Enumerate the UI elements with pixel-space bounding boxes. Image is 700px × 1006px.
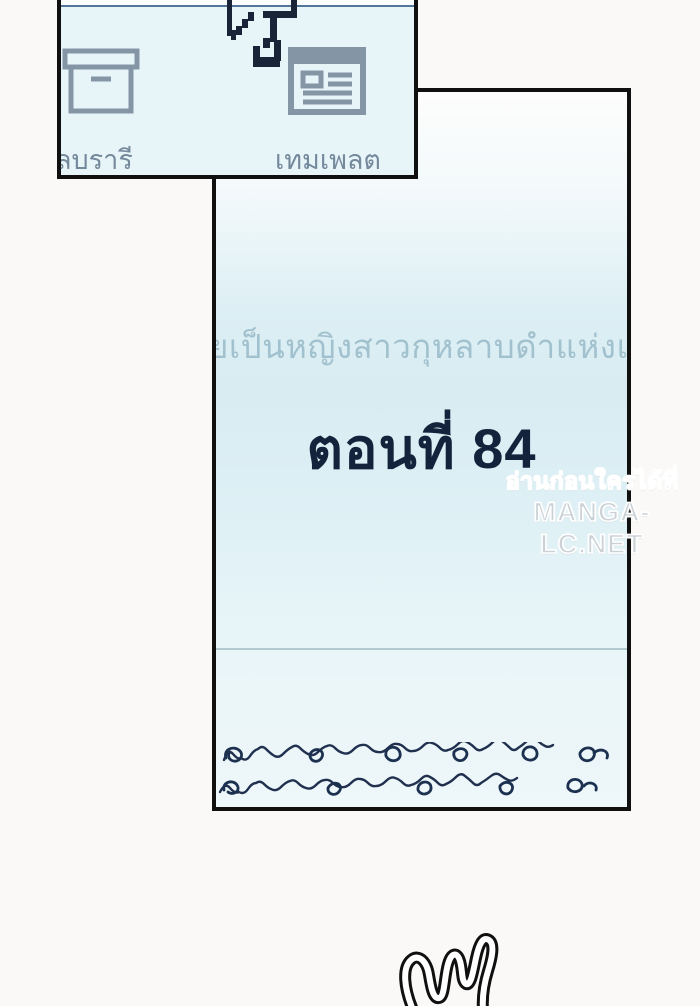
comic-panel: ยเป็นหญิงสาวกุหลาบดำแห่งแวร์ซาย ตอนที่ 8… xyxy=(212,88,631,811)
panel-divider-line xyxy=(216,648,627,650)
watermark-tagline: อ่านก่อนใครได้ที่ xyxy=(482,466,700,496)
series-title: ยเป็นหญิงสาวกุหลาบดำแห่งแวร์ซาย xyxy=(212,326,631,368)
watermark-site-name: MANGA-LC.NET xyxy=(482,496,700,560)
mouse-cursor-icon xyxy=(225,0,300,70)
toolbar-item-library[interactable]: ลบรารี xyxy=(57,144,133,176)
drawn-zigzag-doodle xyxy=(394,926,509,1006)
illegible-handwriting xyxy=(218,742,626,808)
toolbar-item-template[interactable]: เทมเพลต xyxy=(255,144,401,176)
archive-box-icon[interactable] xyxy=(62,48,140,115)
site-watermark: อ่านก่อนใครได้ที่ MANGA-LC.NET xyxy=(482,466,700,560)
